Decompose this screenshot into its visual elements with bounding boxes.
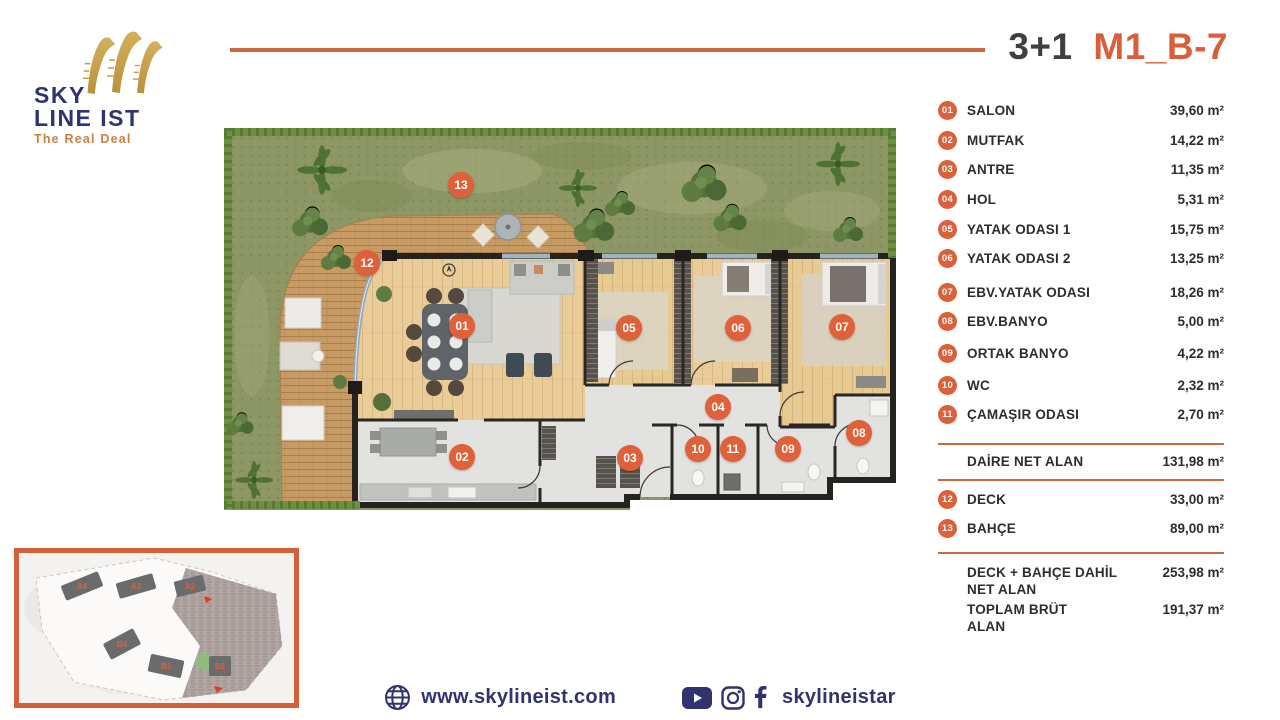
room-label: MUTFAK [967, 133, 1024, 148]
room-label: DECK [967, 492, 1006, 507]
table-row: 12 DECK 33,00 m² [938, 485, 1224, 515]
table-row: 09 ORTAK BANYO 4,22 m² [938, 339, 1224, 369]
net-area-row: DAİRE NET ALAN 131,98 m² [938, 445, 1224, 479]
room-area: 4,22 m² [1177, 346, 1224, 361]
header-rule [230, 48, 985, 52]
site-block-label: B2 [215, 662, 226, 671]
site-block-label: B3 [161, 662, 172, 671]
table-row: 04 HOL 5,31 m² [938, 185, 1224, 215]
plan-badge-10: 10 [685, 436, 711, 462]
floor-plan-graphic [222, 126, 902, 538]
row-badge: 09 [938, 344, 957, 363]
table-row: 05 YATAK ODASI 1 15,75 m² [938, 214, 1224, 244]
website-url: www.skylineist.com [421, 686, 616, 709]
plan-badge-01: 01 [449, 313, 475, 339]
row-badge: 11 [938, 405, 957, 424]
row-badge: 13 [938, 519, 957, 538]
room-label: BAHÇE [967, 521, 1016, 536]
row-badge: 05 [938, 220, 957, 239]
divider [938, 479, 1224, 481]
brand-tagline: The Real Deal [34, 133, 141, 146]
plan-badge-11: 11 [720, 436, 746, 462]
plan-badge-06: 06 [725, 315, 751, 341]
room-area: 5,00 m² [1177, 314, 1224, 329]
instagram-icon[interactable] [721, 686, 745, 710]
room-area: 39,60 m² [1170, 103, 1224, 118]
globe-icon [384, 684, 411, 711]
room-label: SALON [967, 103, 1015, 118]
footer: www.skylineist.com skylineistar [0, 684, 1280, 711]
plan-badge-13: 13 [448, 172, 474, 198]
total-row: DECK + BAHÇE DAHİL NET ALAN 253,98 m² [938, 565, 1224, 599]
total-label-line1: DECK + BAHÇE DAHİL [967, 565, 1117, 582]
total-value: 191,37 m² [1162, 602, 1224, 617]
room-label: WC [967, 378, 990, 393]
plan-type: 3+1 [1008, 26, 1072, 67]
room-label: EBV.BANYO [967, 314, 1048, 329]
youtube-icon[interactable] [682, 687, 712, 709]
plan-badge-12: 12 [354, 250, 380, 276]
floor-plan: 01 02 03 04 05 06 07 08 09 10 11 12 13 [222, 126, 902, 538]
row-badge: 07 [938, 283, 957, 302]
table-row: 02 MUTFAK 14,22 m² [938, 126, 1224, 156]
table-row: 10 WC 2,32 m² [938, 370, 1224, 400]
total-label-line1: TOPLAM BRÜT [967, 602, 1067, 619]
room-label: EBV.YATAK ODASI [967, 285, 1090, 300]
room-label: ANTRE [967, 162, 1015, 177]
page-title: 3+1 M1_B-7 [1008, 26, 1228, 68]
total-label-line2: NET ALAN [967, 582, 1117, 599]
table-row: 03 ANTRE 11,35 m² [938, 155, 1224, 185]
plan-badge-03: 03 [617, 445, 643, 471]
brand-logo: SKY LINE IST The Real Deal [30, 26, 200, 141]
net-area-value: 131,98 m² [1162, 454, 1224, 469]
facebook-icon[interactable] [754, 686, 767, 710]
room-label: ÇAMAŞIR ODASI [967, 407, 1079, 422]
plan-badge-09: 09 [775, 436, 801, 462]
total-row: TOPLAM BRÜT ALAN 191,37 m² [938, 602, 1224, 636]
room-label: YATAK ODASI 2 [967, 251, 1071, 266]
row-badge: 01 [938, 101, 957, 120]
table-row: 08 EBV.BANYO 5,00 m² [938, 307, 1224, 337]
room-area: 15,75 m² [1170, 222, 1224, 237]
room-area: 13,25 m² [1170, 251, 1224, 266]
room-area: 14,22 m² [1170, 133, 1224, 148]
plan-badge-05: 05 [616, 315, 642, 341]
divider [938, 552, 1224, 554]
website-link[interactable]: www.skylineist.com [384, 684, 616, 711]
social-handle: skylineistar [782, 686, 896, 709]
brochure-page: SKY LINE IST The Real Deal 3+1 M1_B-7 [0, 0, 1280, 720]
brand-name-line2: LINE IST [34, 107, 141, 130]
room-label: HOL [967, 192, 996, 207]
row-badge: 10 [938, 376, 957, 395]
room-area: 5,31 m² [1177, 192, 1224, 207]
table-row: 01 SALON 39,60 m² [938, 96, 1224, 126]
row-badge: 12 [938, 490, 957, 509]
room-area: 2,70 m² [1177, 407, 1224, 422]
unit-code: M1_B-7 [1093, 26, 1228, 67]
table-row: 07 EBV.YATAK ODASI 18,26 m² [938, 278, 1224, 308]
room-area: 33,00 m² [1170, 492, 1224, 507]
row-badge: 02 [938, 131, 957, 150]
total-label-line2: ALAN [967, 619, 1067, 636]
row-badge: 04 [938, 190, 957, 209]
row-badge: 08 [938, 312, 957, 331]
room-label: YATAK ODASI 1 [967, 222, 1071, 237]
room-area: 2,32 m² [1177, 378, 1224, 393]
plan-badge-08: 08 [846, 420, 872, 446]
room-area: 89,00 m² [1170, 521, 1224, 536]
plan-badge-04: 04 [705, 394, 731, 420]
total-value: 253,98 m² [1162, 565, 1224, 580]
table-row: 06 YATAK ODASI 2 13,25 m² [938, 244, 1224, 274]
site-block-label: B4 [117, 640, 128, 649]
site-block-label: A4 [77, 582, 88, 591]
net-area-label: DAİRE NET ALAN [967, 454, 1083, 469]
brand-name-line1: SKY [34, 84, 141, 107]
room-area: 18,26 m² [1170, 285, 1224, 300]
room-area: 11,35 m² [1171, 162, 1224, 177]
table-row: 11 ÇAMAŞIR ODASI 2,70 m² [938, 400, 1224, 430]
social-links: skylineistar [682, 686, 896, 710]
room-label: ORTAK BANYO [967, 346, 1069, 361]
row-badge: 03 [938, 160, 957, 179]
row-badge: 06 [938, 249, 957, 268]
site-block-label: A2 [185, 582, 196, 591]
room-table: 01 SALON 39,60 m² 02 MUTFAK 14,22 m² 03 … [938, 96, 1224, 636]
plan-badge-07: 07 [829, 314, 855, 340]
site-block-label: A3 [131, 582, 142, 591]
plan-badge-02: 02 [449, 444, 475, 470]
table-row: 13 BAHÇE 89,00 m² [938, 514, 1224, 544]
